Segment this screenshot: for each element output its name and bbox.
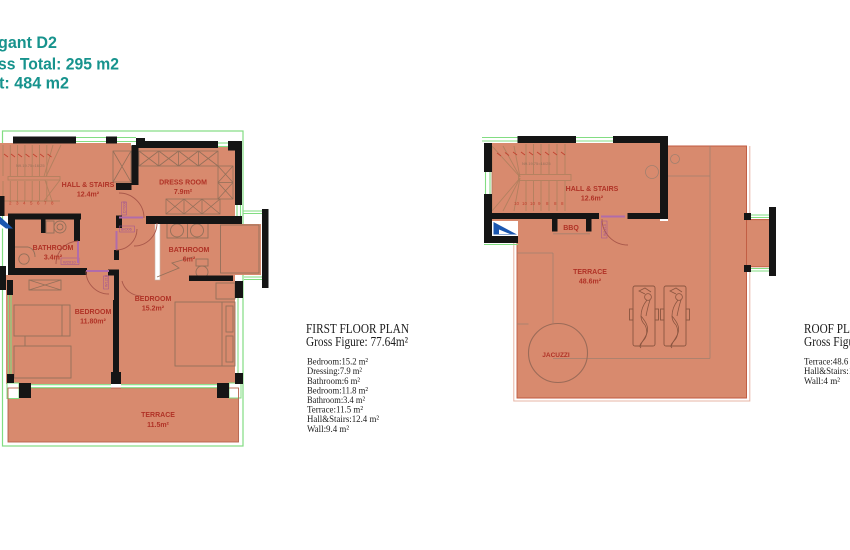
svg-text:W2010: W2010 (63, 260, 76, 265)
svg-text:BBQ: BBQ (563, 225, 579, 232)
svg-text:6m²: 6m² (183, 257, 196, 264)
svg-text:48.6m²: 48.6m² (579, 279, 602, 286)
svg-text:DY008: DY008 (123, 201, 127, 213)
svg-text:BEDROOM: BEDROOM (75, 309, 112, 316)
svg-text:12.4m²: 12.4m² (77, 192, 100, 199)
svg-text:Gross Figure: 77.64m²: Gross Figure: 77.64m² (306, 334, 408, 349)
svg-text:Wall:4 m²: Wall:4 m² (804, 376, 840, 387)
svg-text:BEDROOM: BEDROOM (135, 296, 172, 303)
svg-text:BIO06: BIO06 (121, 228, 132, 232)
svg-text:HALL & STAIRS: HALL & STAIRS (62, 182, 115, 189)
svg-text:BATHROOM: BATHROOM (33, 245, 74, 252)
svg-text:N9.19.75=16/25: N9.19.75=16/25 (522, 161, 551, 166)
svg-text:W1210: W1210 (105, 275, 109, 287)
svg-text:11.5m²: 11.5m² (147, 422, 169, 429)
svg-text:10: 10 (514, 201, 520, 206)
svg-text:Wall:9.4 m²: Wall:9.4 m² (307, 424, 349, 435)
svg-text:10: 10 (530, 201, 536, 206)
svg-text:DRESS ROOM: DRESS ROOM (159, 180, 207, 187)
svg-text:BATHROOM: BATHROOM (169, 247, 210, 254)
svg-text:10: 10 (522, 201, 528, 206)
svg-text:TERRACE: TERRACE (141, 412, 175, 419)
svg-text:12.6m²: 12.6m² (581, 196, 604, 203)
svg-text:N9.19.75=16/25: N9.19.75=16/25 (16, 163, 45, 168)
svg-text:gant D2: gant D2 (0, 33, 57, 52)
svg-text:3.4m²: 3.4m² (44, 255, 63, 262)
svg-text:11.80m²: 11.80m² (80, 319, 106, 326)
svg-text:ss Total: 295 m2: ss Total: 295 m2 (0, 55, 119, 74)
svg-text:HALL & STAIRS: HALL & STAIRS (566, 186, 619, 193)
svg-text:W1210: W1210 (603, 224, 607, 236)
svg-text:JACUZZI: JACUZZI (542, 352, 570, 359)
svg-text:t: 484 m2: t: 484 m2 (0, 74, 69, 93)
svg-text:15.2m²: 15.2m² (142, 306, 165, 313)
svg-text:Gross Figure: 65.2m²: Gross Figure: 65.2m² (804, 334, 850, 349)
svg-text:7.9m²: 7.9m² (174, 189, 193, 196)
svg-text:TERRACE: TERRACE (573, 269, 607, 276)
